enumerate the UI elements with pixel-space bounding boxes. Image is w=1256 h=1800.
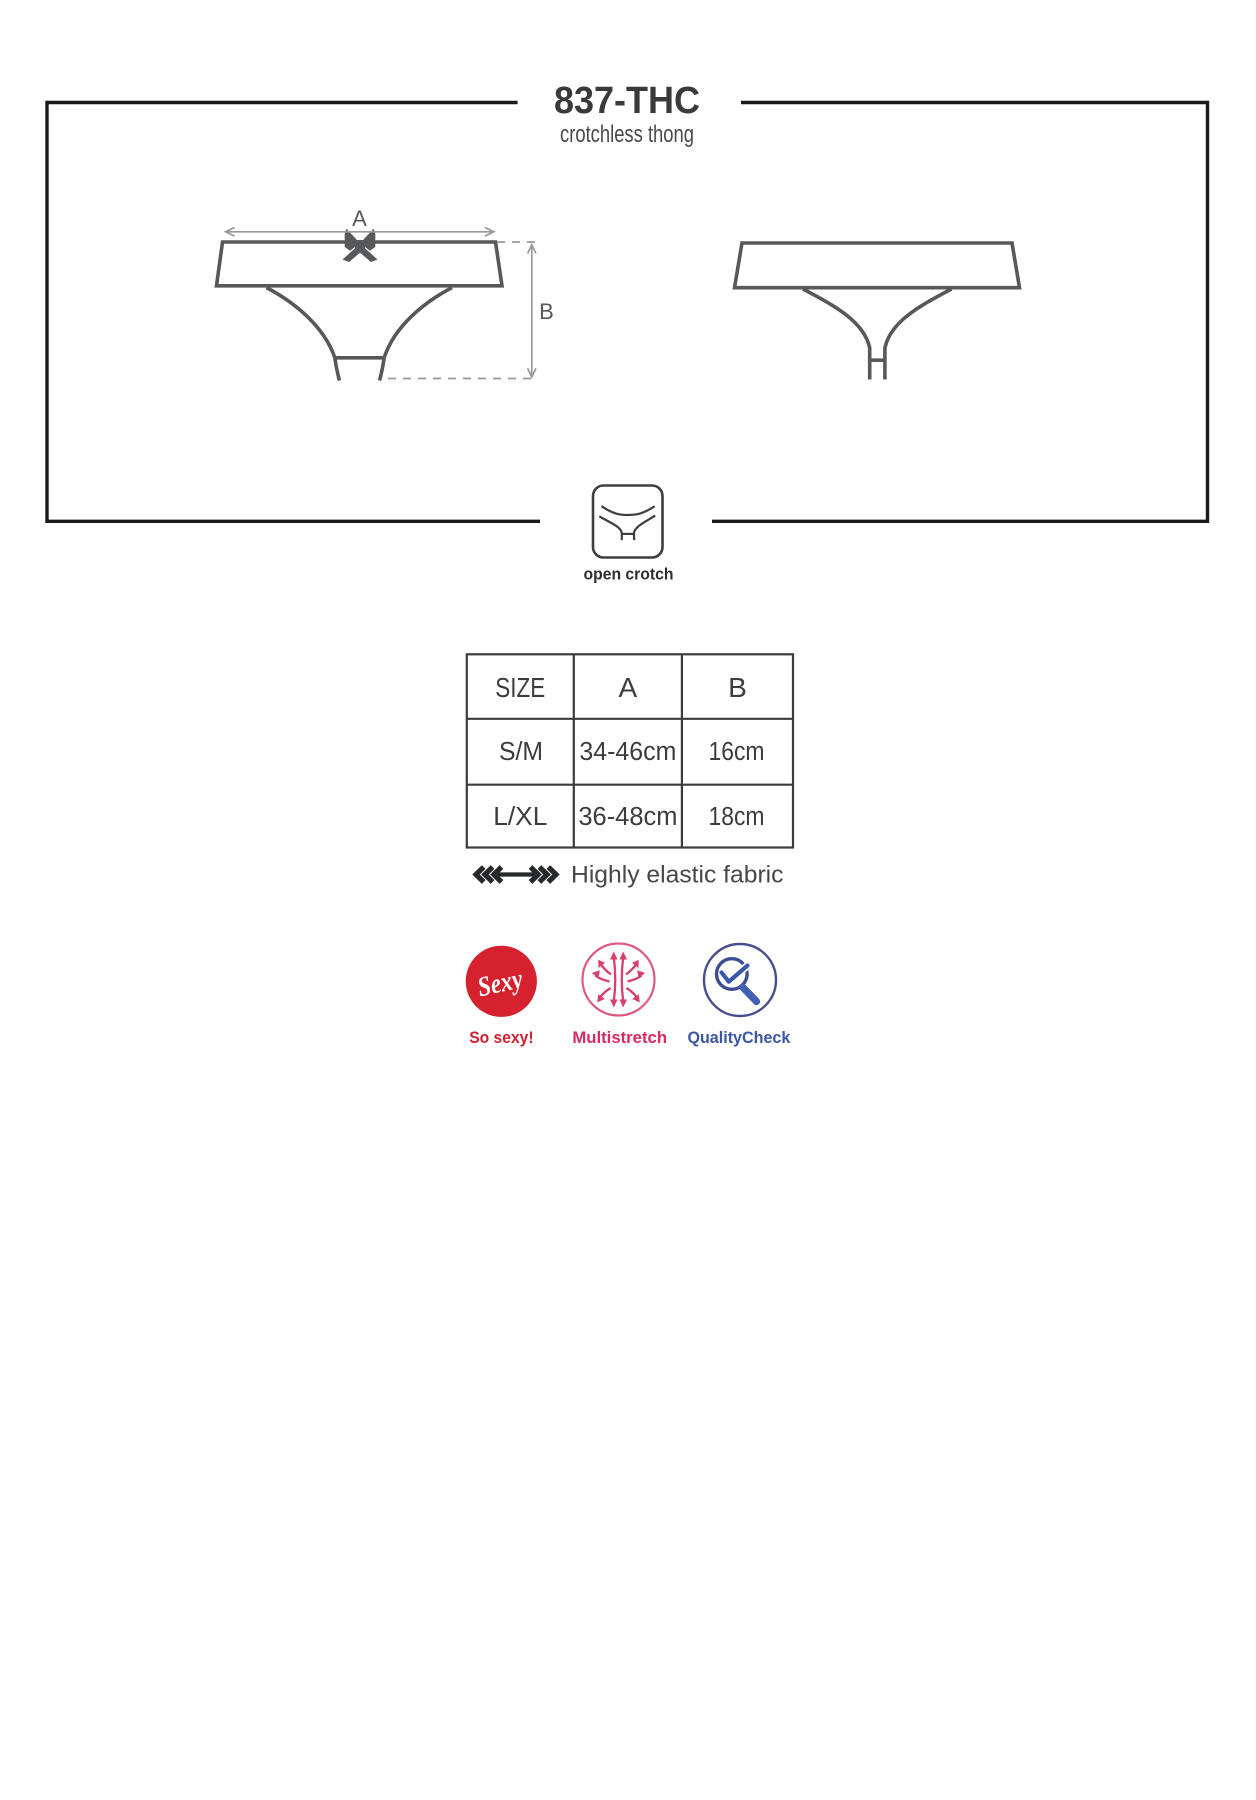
svg-text:A: A xyxy=(352,206,367,231)
svg-text:36-48cm: 36-48cm xyxy=(578,803,677,831)
svg-text:Highly elastic fabric: Highly elastic fabric xyxy=(571,862,784,889)
svg-text:16cm: 16cm xyxy=(709,738,765,766)
svg-text:So sexy!: So sexy! xyxy=(469,1028,533,1047)
svg-text:18cm: 18cm xyxy=(709,803,765,831)
svg-text:SIZE: SIZE xyxy=(495,672,545,703)
svg-text:L/XL: L/XL xyxy=(493,803,547,831)
svg-text:837-THC: 837-THC xyxy=(554,80,700,122)
svg-text:34-46cm: 34-46cm xyxy=(579,738,676,766)
svg-text:QualityCheck: QualityCheck xyxy=(687,1028,790,1047)
svg-text:A: A xyxy=(619,672,638,703)
svg-text:crotchless thong: crotchless thong xyxy=(560,121,694,148)
svg-text:B: B xyxy=(728,672,747,703)
svg-text:open crotch: open crotch xyxy=(584,566,674,584)
svg-text:S/M: S/M xyxy=(499,738,543,766)
svg-text:B: B xyxy=(539,299,554,324)
svg-text:Multistretch: Multistretch xyxy=(572,1028,667,1047)
